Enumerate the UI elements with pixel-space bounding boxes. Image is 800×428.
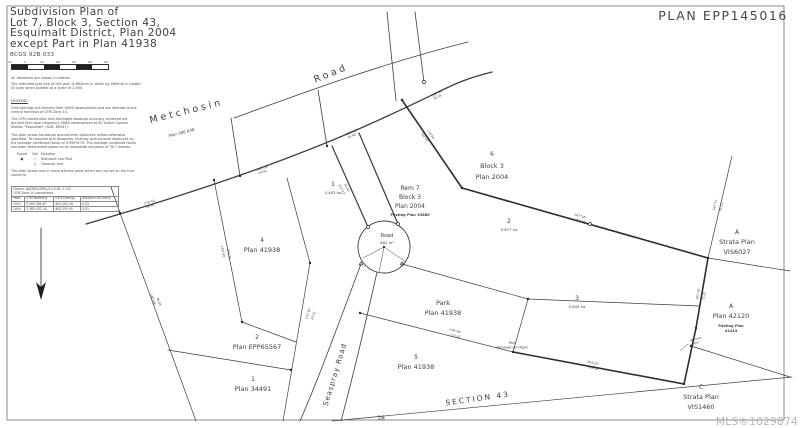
scale-cell bbox=[76, 65, 92, 69]
legend-symbol-row: ●○Standard Iron Post bbox=[15, 157, 137, 161]
plan-label: C bbox=[699, 384, 703, 391]
road-crossing-line-2 bbox=[231, 118, 240, 176]
legend-paragraph: The UTM coordinates and estimated absolu… bbox=[11, 117, 137, 129]
boundary-northwest bbox=[402, 100, 462, 188]
plan-label: 2 bbox=[507, 218, 511, 225]
coord-table-body: 10025,365,385.67463,263.280.0310045,365,… bbox=[12, 202, 119, 212]
plan-label: 41.15 bbox=[718, 202, 724, 211]
plan-label: Plan 34491 bbox=[235, 385, 272, 393]
plan-drawing: MetchosinRoadPlan 380 R/W10.403 haRem 7B… bbox=[0, 0, 800, 428]
plan-label: Metchosin bbox=[148, 97, 224, 126]
plan-label: Posting Plan 33860 bbox=[390, 213, 430, 217]
plan-label: 167°11' bbox=[712, 198, 719, 211]
plot-size-note: The intended plot size of this plan is 8… bbox=[11, 82, 141, 90]
utm-coordinates: PointUTM NorthingUTM EastingAbsolute Acc… bbox=[11, 196, 119, 213]
road-dedication-east-edge bbox=[359, 133, 398, 224]
plan-label: Seaspray Road bbox=[322, 342, 349, 407]
plan-label: A bbox=[735, 229, 740, 236]
park-north-line bbox=[402, 264, 528, 299]
plan-label: Part bbox=[509, 341, 516, 345]
plan-label: Plan 380 R/W bbox=[168, 127, 195, 138]
scale-cell bbox=[28, 65, 44, 69]
coord-cell: 5,365,432.34 bbox=[25, 207, 54, 212]
plan-label: Strata Plan bbox=[719, 238, 755, 246]
plan-label: 185°30' bbox=[695, 287, 701, 300]
legend: LEGEND: Grid bearings are derived from G… bbox=[11, 99, 137, 177]
plan-label: 4 bbox=[260, 237, 264, 244]
scale-cell bbox=[60, 65, 76, 69]
plan-label: 20.12 bbox=[310, 311, 316, 320]
plan-label: 0.843 ha bbox=[569, 304, 586, 309]
plan-label: Posting Plan bbox=[718, 324, 744, 328]
legend-symbols-header-cell: Set bbox=[29, 152, 41, 156]
traverse-hub-markers bbox=[359, 262, 404, 265]
plan42120-vis1460-line bbox=[691, 346, 790, 377]
boundary-east bbox=[684, 258, 708, 384]
plan-label: 104.23 bbox=[226, 248, 232, 259]
plan-label: 41413 bbox=[725, 329, 738, 333]
legend-paragraph: Grid bearings are derived from GNSS obse… bbox=[11, 106, 137, 114]
lot2-lot3-line bbox=[528, 299, 700, 306]
plan-label: Plan 41938 bbox=[398, 363, 435, 371]
seaspray-west-lot-line bbox=[283, 263, 310, 421]
legend-symbols-header: FoundSetDenotes bbox=[15, 152, 137, 156]
plan-label: VIS1460 bbox=[687, 403, 714, 411]
west-parcels-line bbox=[120, 213, 196, 421]
legend-symbols-header-cell: Found bbox=[15, 152, 29, 156]
legend-symbol-cell: Traverse Hub bbox=[41, 162, 137, 166]
plan-label: Plan 2004 bbox=[395, 203, 425, 210]
plan-label: 72.41 bbox=[701, 291, 706, 300]
park-south-line bbox=[360, 313, 513, 352]
plan-label: 2 bbox=[255, 334, 259, 341]
scale-cell bbox=[92, 65, 108, 69]
road-crossing-line-4 bbox=[387, 12, 396, 101]
plan34491-north-line bbox=[168, 350, 291, 370]
plan-label: 0.877 ha bbox=[501, 227, 518, 232]
plan-label: Road bbox=[312, 62, 349, 86]
plan-label: Rem 7 bbox=[400, 185, 419, 192]
scale-tick: 0 bbox=[24, 60, 26, 64]
vis6027-plan42120-line bbox=[708, 258, 790, 271]
coord-row: 10045,365,432.34463,259.900.03 bbox=[12, 207, 119, 212]
scale-cell bbox=[44, 65, 60, 69]
legend-symbol-cell: △ bbox=[29, 162, 41, 166]
legend-symbol-cell: ● bbox=[15, 157, 29, 161]
plan-title: Subdivision Plan ofLot 7, Block 3, Secti… bbox=[10, 7, 177, 49]
plan-label: 1 bbox=[251, 376, 255, 383]
plan-title-line: except Part in Plan 41938 bbox=[10, 39, 177, 50]
plan-number: PLAN EPP145016 bbox=[658, 8, 788, 23]
witness-note: This plan shows one or more witness post… bbox=[11, 169, 137, 177]
legend-heading: LEGEND: bbox=[11, 99, 137, 103]
lot4-east-line bbox=[287, 178, 310, 263]
scale-tick: 10 bbox=[8, 60, 12, 64]
legend-symbol-cell bbox=[15, 162, 29, 166]
scale-tick: 30 bbox=[72, 60, 76, 64]
plan-label: Plan 2004 bbox=[476, 173, 508, 181]
plan-label: Removed and Road bbox=[497, 346, 528, 350]
scale-tick: 40 bbox=[88, 60, 92, 64]
plan-label: 5 bbox=[414, 354, 418, 361]
plan-labels: MetchosinRoadPlan 380 R/W10.403 haRem 7B… bbox=[143, 62, 754, 422]
plan-label: 38.10 bbox=[145, 203, 154, 209]
scale-tick: 50 bbox=[104, 60, 108, 64]
coord-cell: 1004 bbox=[12, 207, 25, 212]
plan-label: Plan 41938 bbox=[244, 246, 281, 254]
coord-cell: 0.03 bbox=[80, 207, 118, 212]
plan-label: 1 bbox=[331, 181, 335, 188]
plan-label: 6 bbox=[490, 151, 494, 158]
legend-symbol-cell: ○ bbox=[29, 157, 41, 161]
coordinate-table: Datum: NAD83(CSRS)/4.0.0.BC.1.GVI UTM Zo… bbox=[11, 186, 119, 212]
scale-tick: 20 bbox=[56, 60, 60, 64]
legend-symbol-cell: Standard Iron Post bbox=[41, 157, 137, 161]
road-crossing-line-5 bbox=[415, 12, 424, 82]
mls-watermark: MLS®1029874 bbox=[716, 416, 798, 428]
lot4-south-line bbox=[242, 322, 296, 342]
plan-sheet: MetchosinRoadPlan 380 R/W10.403 haRem 7B… bbox=[0, 0, 800, 428]
plan-label: A bbox=[729, 303, 734, 310]
plan-label: VIS6027 bbox=[723, 248, 750, 256]
plan-label: Plan 42120 bbox=[713, 312, 750, 320]
legend-paragraphs: Grid bearings are derived from GNSS obse… bbox=[11, 106, 137, 149]
section-line bbox=[332, 377, 792, 421]
plan-label: Plan 41938 bbox=[425, 309, 462, 317]
legend-symbols-header-cell: Denotes bbox=[41, 152, 137, 156]
plan-label: Block 3 bbox=[480, 162, 504, 170]
plan-label: Park bbox=[436, 299, 450, 307]
legend-symbols: FoundSetDenotes●○Standard Iron Post△Trav… bbox=[15, 152, 137, 166]
legend-symbol-row: △Traverse Hub bbox=[15, 162, 137, 166]
road-crossing-line-3 bbox=[318, 90, 327, 146]
plan-label: 160°04' bbox=[149, 293, 157, 306]
plan-label: Post bbox=[692, 340, 700, 346]
plan-label: Road bbox=[381, 233, 394, 239]
scale-cell bbox=[12, 65, 28, 69]
plan-label: 862 m² bbox=[380, 240, 394, 245]
scale-tick: 10 bbox=[40, 60, 44, 64]
park-lot3-line bbox=[513, 299, 528, 352]
coord-cell: 463,259.90 bbox=[54, 207, 81, 212]
scale-bar-ticks: 1001020304050 bbox=[11, 60, 111, 64]
bcgs-ref: BCGS 92B.033 bbox=[10, 52, 54, 58]
plan-label: Strata Plan bbox=[683, 393, 719, 401]
plan-label: Plan EPP65567 bbox=[233, 343, 282, 351]
scale-bar: 1001020304050 bbox=[11, 60, 111, 72]
legend-paragraph: This plan shows horizontal ground-level … bbox=[11, 133, 137, 149]
metchosin-road-north-edge bbox=[234, 42, 468, 118]
plan-title-line: Subdivision Plan of bbox=[10, 7, 177, 18]
plan-label: 0.403 ha bbox=[325, 190, 342, 195]
plan-label: 18 bbox=[377, 415, 385, 422]
distances-note: All distances are shown in metres. bbox=[11, 76, 141, 80]
north-arrow-icon bbox=[36, 228, 46, 300]
road-dedication-west-edge bbox=[332, 146, 368, 227]
found-post-markers bbox=[119, 99, 709, 385]
scale-bar-cells bbox=[11, 64, 109, 70]
witness-arrow bbox=[680, 344, 688, 351]
plan-label: Block 3 bbox=[399, 194, 421, 201]
plan-label: 168°40' bbox=[220, 246, 226, 259]
plan-label: 3 bbox=[575, 295, 579, 302]
